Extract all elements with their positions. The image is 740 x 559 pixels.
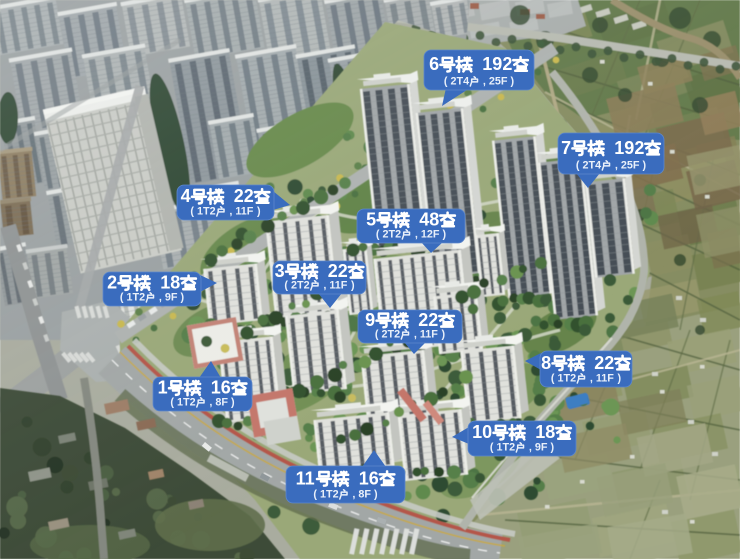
svg-text:): ) (440, 229, 447, 241)
svg-text:): ) (439, 329, 446, 341)
svg-text:): ) (348, 280, 355, 292)
svg-text:9: 9 (365, 310, 375, 330)
svg-text:): ) (640, 160, 647, 172)
svg-text:,: , (412, 229, 421, 241)
svg-text:,: , (587, 373, 596, 385)
svg-text:,: , (349, 489, 358, 501)
svg-text:192: 192 (482, 54, 512, 74)
svg-text:,: , (526, 442, 535, 454)
svg-text:9F: 9F (535, 442, 548, 454)
svg-text:): ) (371, 489, 378, 501)
svg-text:5: 5 (366, 210, 376, 230)
svg-text:4: 4 (181, 186, 191, 206)
svg-text:48: 48 (419, 210, 439, 230)
svg-text:,: , (156, 292, 165, 304)
svg-text:2T4: 2T4 (451, 76, 470, 88)
svg-text:11F: 11F (420, 329, 438, 341)
svg-text:7: 7 (561, 138, 571, 158)
svg-text:2T2: 2T2 (382, 329, 401, 341)
svg-text:11F: 11F (235, 206, 253, 218)
svg-text:): ) (178, 292, 185, 304)
svg-text:192: 192 (614, 138, 644, 158)
svg-text:22: 22 (328, 261, 348, 281)
svg-text:1T2: 1T2 (177, 397, 196, 409)
svg-text:11: 11 (296, 468, 315, 488)
svg-text:,: , (206, 397, 215, 409)
svg-text:10: 10 (472, 422, 492, 442)
svg-text:): ) (615, 373, 622, 385)
svg-text:22: 22 (594, 353, 614, 373)
svg-text:6: 6 (429, 54, 439, 74)
svg-text:8F: 8F (215, 397, 228, 409)
svg-text:25F: 25F (489, 76, 508, 88)
svg-text:2T2: 2T2 (291, 280, 310, 292)
svg-text:,: , (320, 280, 329, 292)
svg-text:,: , (411, 329, 420, 341)
svg-text:,: , (612, 160, 621, 172)
svg-text:1T2: 1T2 (320, 489, 339, 501)
svg-text:18: 18 (160, 273, 180, 293)
svg-text:12F: 12F (421, 229, 440, 241)
svg-text:2: 2 (107, 273, 117, 293)
svg-text:22: 22 (418, 310, 438, 330)
svg-text:9F: 9F (165, 292, 178, 304)
svg-text:11F: 11F (329, 280, 347, 292)
svg-text:1T2: 1T2 (558, 373, 577, 385)
svg-text:): ) (254, 206, 261, 218)
svg-text:,: , (480, 76, 489, 88)
svg-text:): ) (228, 397, 235, 409)
svg-text:1: 1 (158, 378, 168, 398)
svg-text:3: 3 (275, 261, 285, 281)
svg-text:18: 18 (535, 422, 555, 442)
svg-text:2T2: 2T2 (383, 229, 402, 241)
svg-text:1T2: 1T2 (127, 292, 146, 304)
svg-text:,: , (226, 206, 235, 218)
svg-text:25F: 25F (621, 160, 640, 172)
svg-text:22: 22 (234, 186, 254, 206)
svg-text:): ) (508, 76, 515, 88)
svg-text:16: 16 (211, 378, 231, 398)
svg-text:8F: 8F (358, 489, 371, 501)
svg-text:1T2: 1T2 (197, 206, 216, 218)
svg-text:11F: 11F (596, 373, 614, 385)
svg-text:16: 16 (359, 468, 379, 488)
svg-text:1T2: 1T2 (497, 442, 516, 454)
svg-text:): ) (548, 442, 555, 454)
svg-text:8: 8 (541, 353, 551, 373)
svg-text:2T4: 2T4 (583, 160, 602, 172)
